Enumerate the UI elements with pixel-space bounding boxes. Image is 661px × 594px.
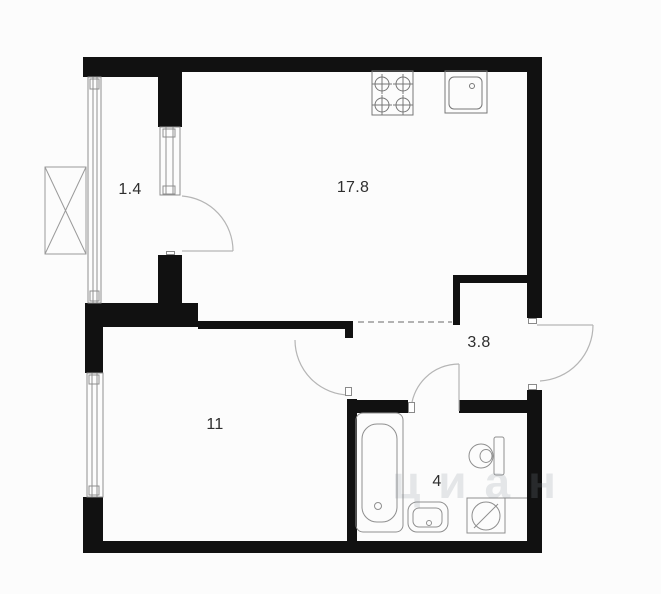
bedroom-window	[87, 373, 103, 497]
kitchen-sink-icon	[445, 71, 487, 113]
bathroom-sink-icon	[408, 502, 448, 532]
room-label-bathroom: 4	[432, 473, 441, 491]
bathroom-door	[411, 364, 459, 412]
room-label-hallway: 3.8	[467, 334, 490, 352]
toilet-icon	[469, 437, 504, 475]
floor-plan: 1.4 17.8 3.8 11 4 циан	[0, 0, 661, 594]
plan-linework	[0, 0, 661, 594]
room-label-kitchen-living: 17.8	[337, 179, 369, 197]
balcony-door-jamb	[166, 251, 175, 255]
balcony-glazing	[88, 77, 101, 303]
air-conditioner-icon	[45, 167, 86, 254]
room-label-balcony: 1.4	[118, 181, 141, 199]
bedroom-door-leaf	[345, 387, 352, 396]
entrance-door	[537, 325, 593, 381]
room-label-bedroom: 11	[206, 416, 223, 434]
balcony-window	[160, 127, 180, 195]
balcony-door	[182, 196, 233, 251]
bedroom-door	[295, 340, 350, 395]
bathtub-icon	[356, 413, 403, 532]
washing-machine-icon	[467, 498, 527, 533]
bathroom-door-jamb	[408, 402, 415, 413]
entrance-door-jamb-top	[528, 318, 537, 324]
stove-icon	[372, 71, 413, 115]
entrance-door-jamb-bottom	[528, 384, 537, 390]
